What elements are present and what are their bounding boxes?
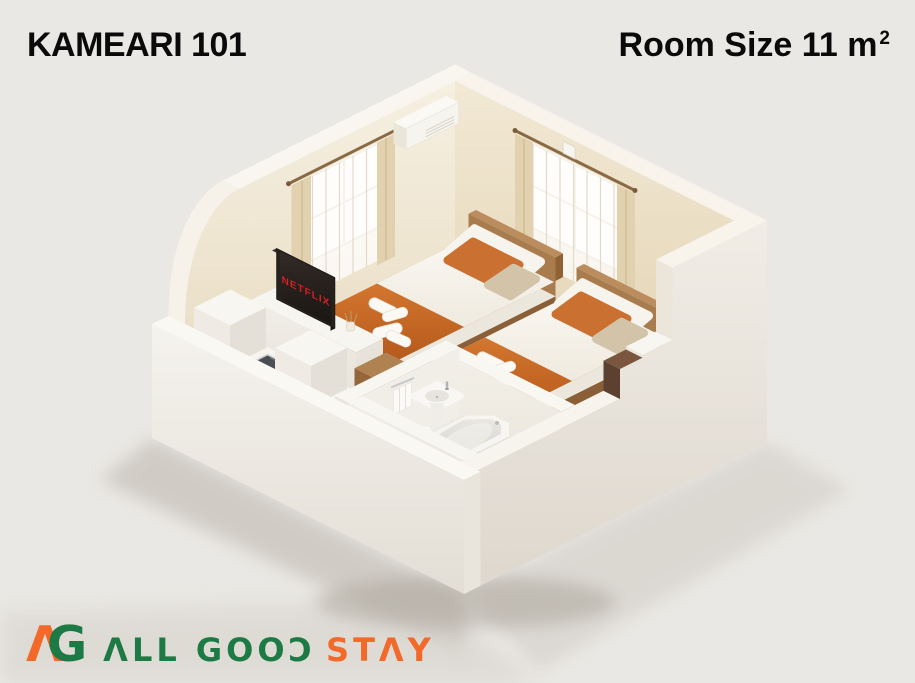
room-size-label: Room Size 11 m2 — [619, 26, 890, 65]
logo-wordmark-allgood: ΛLL GOOƆ — [103, 631, 316, 669]
floor-plan-poster: NETFLIX — [0, 0, 915, 683]
room-size-unit: m — [847, 26, 877, 64]
room-size-superscript: 2 — [879, 28, 890, 49]
room-size-text: Room Size 11 — [619, 26, 838, 64]
logo-monogram-g: G — [47, 620, 87, 669]
logo-wordmark-stay: STΛY — [326, 631, 435, 669]
page-title: KAMEARI 101 — [27, 26, 246, 65]
brand-logo: Λ G ΛLL GOOƆ STΛY — [26, 620, 435, 669]
isometric-room-render: NETFLIX — [0, 0, 915, 683]
